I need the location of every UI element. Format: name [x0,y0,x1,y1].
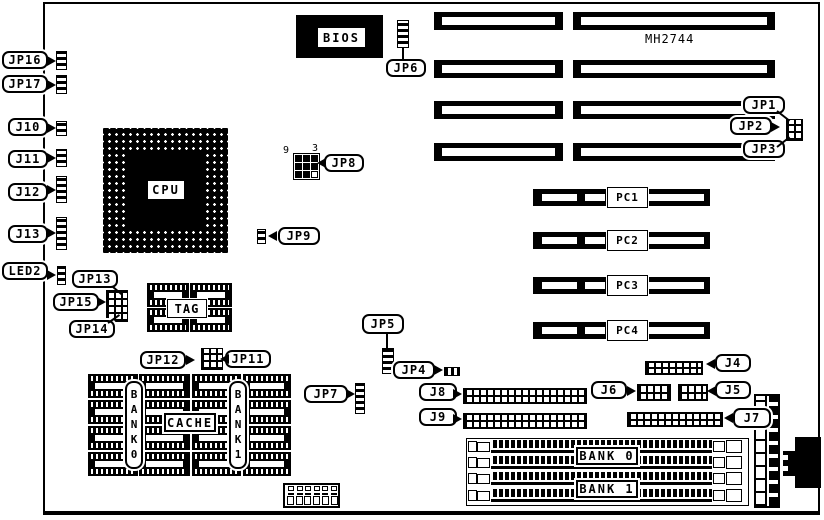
callout-jp15: JP15 [53,293,99,311]
callout-jp2: JP2 [730,117,772,135]
jp8-pin [303,163,310,170]
fp-pin [304,496,311,505]
isa-slot [434,101,563,119]
tag-label: TAG [167,299,207,318]
fp-pin [287,496,294,505]
pci-slot-key [542,237,577,244]
simm-endcap [726,440,742,453]
motherboard-diagram: MH2744 BIOS CPU JP16 JP17 J10 J11 J12 J1… [0,0,824,520]
pointer-j11 [47,153,56,163]
callout-j7: J7 [733,408,771,428]
pointer-jp17 [47,80,56,90]
pci-slot-key [542,327,577,334]
j13-connector [56,217,67,250]
simm-clip [468,457,477,468]
callout-jp12: JP12 [140,351,186,369]
pointer-led2 [47,270,56,280]
bios-chip-label: BIOS [318,28,365,47]
pointer-jp2 [771,122,780,132]
callout-j4: J4 [715,354,751,372]
chip-band [250,409,284,415]
fp-dash [297,493,303,495]
pci-slot-label: PC4 [607,320,648,341]
callout-j13: J13 [8,225,48,243]
fp-tab [305,486,311,491]
jp8-pin [303,155,310,162]
callout-j9: J9 [419,408,457,426]
pointer-jp9 [268,231,277,241]
fp-dash [314,493,320,495]
simm-clip [468,441,477,452]
pointer-jp16 [47,56,56,66]
fp-tab [297,486,303,491]
simm-clip [477,442,490,452]
pointer-j6 [627,386,636,396]
jp9-jumper [257,229,266,244]
j5-pin-header [678,384,708,401]
pci-slot-key [649,327,704,334]
fp-dash [322,493,328,495]
isa-slot [434,143,563,161]
cache-sram-chip [243,452,291,476]
pointer-j7 [724,413,733,423]
cache-bank0-label: BANK0 [125,381,143,469]
jp6-jumper [397,20,409,48]
simm-clip [468,490,477,501]
fp-dash [288,493,294,495]
pointer-jp5 [386,333,388,348]
simm-clip [713,441,725,452]
jp8-pin [303,171,310,178]
chip-band [146,435,183,441]
callout-jp16: JP16 [2,51,48,69]
jp8-pin9-text: 9 [283,145,289,156]
pci-slot-key [585,282,605,289]
simm-clip [477,458,490,468]
pci-slot-key [542,282,577,289]
isa-slot [573,60,775,78]
j8-pin-header [463,388,587,404]
pointer-jp7 [346,389,355,399]
jp8-jumper-grid [293,153,320,180]
led2-component [57,266,66,285]
fp-pin [322,496,329,505]
cache-bank1-label: BANK1 [229,381,247,469]
callout-jp8: JP8 [324,154,364,172]
isa-slot [434,60,563,78]
callout-jp7: JP7 [304,385,348,403]
callout-j6: J6 [591,381,627,399]
pointer-jp6 [402,47,404,60]
pci-slot-key [585,237,605,244]
simm-endcap [726,472,742,485]
j6-pin-header [637,384,671,401]
front-panel-connector [283,483,340,508]
callout-j12: J12 [8,183,48,201]
fp-pin [296,496,303,505]
j9-pin-header [463,413,587,429]
chip-band [197,292,225,298]
simm-clip [477,491,490,501]
jp16-jumper [56,51,67,70]
simm-bank0-label: BANK 0 [576,447,638,465]
j12-connector [56,176,67,203]
simm-clip [468,473,477,484]
pci-slot-label: PC1 [607,187,648,208]
fp-tab [322,486,328,491]
callout-jp9: JP9 [278,227,320,245]
keyboard-connector-notch [783,455,788,460]
jp8-pin [295,163,302,170]
fp-pin [313,496,320,505]
jp8-pin-open [311,171,318,178]
callout-jp6: JP6 [386,59,426,77]
simm-clip [713,490,725,501]
callout-j8: J8 [419,383,457,401]
pointer-j8 [453,389,462,399]
pointer-j5 [707,386,716,396]
fp-tab [288,486,294,491]
simm-endcap [726,489,742,502]
pointer-jp8 [317,158,326,168]
pointer-j12 [47,185,56,195]
chip-band [250,383,284,389]
chip-band [146,461,183,467]
fp-dash [305,493,311,495]
simm-endcap [726,456,742,469]
pointer-jp11 [220,354,229,364]
cache-sram-chip [139,374,190,398]
pci-slot-label: PC2 [607,230,648,251]
cache-sram-chip [243,426,291,450]
jp7-jumper [355,383,365,414]
pci-slot-label: PC3 [607,275,648,296]
cache-sram-chip [243,374,291,398]
callout-jp4: JP4 [393,361,435,379]
chip-band [146,383,183,389]
isa-slot [573,12,775,30]
simm-clip [713,457,725,468]
callout-j5: J5 [715,381,751,399]
jp4-jumper [444,367,460,376]
cache-sram-chip [243,400,291,424]
chip-band [250,461,284,467]
j7-pin-header [627,412,723,427]
callout-j11: J11 [8,150,48,168]
jp8-pin [295,155,302,162]
callout-jp17: JP17 [2,75,48,93]
fp-dash [331,493,337,495]
pointer-jp12 [186,355,195,365]
cache-label: CACHE [164,413,216,432]
pointer-jp4 [434,365,443,375]
callout-j10: J10 [8,118,48,136]
callout-jp11: JP11 [225,350,271,368]
cpu-label: CPU [148,181,184,199]
j4-pin-header [645,361,703,375]
chip-band [250,435,284,441]
fp-pin [331,496,338,505]
pci-slot-key [585,327,605,334]
board-model-text: MH2744 [645,32,694,46]
pointer-j9 [453,414,462,424]
isa-slot [434,12,563,30]
keyboard-connector-notch [783,466,788,471]
callout-led2: LED2 [2,262,48,280]
pci-slot-key [585,194,605,201]
j11-connector [56,149,67,167]
keyboard-connector [795,437,821,488]
cache-sram-chip [139,452,190,476]
pci-slot-key [542,194,577,201]
jp8-pin [295,171,302,178]
pci-slot-key [649,237,704,244]
fp-tab [314,486,320,491]
pci-slot-key [649,194,704,201]
j10-connector [56,121,67,136]
callout-jp5: JP5 [362,314,404,334]
simm-clip [477,474,490,484]
pointer-j4 [706,359,715,369]
pointer-j10 [47,123,56,133]
pci-slot-key [649,282,704,289]
pointer-jp15 [97,297,106,307]
fp-tab [331,486,337,491]
chip-band [154,292,182,298]
callout-jp13: JP13 [72,270,118,288]
pointer-j13 [47,228,56,238]
jp8-pin3-text: 3 [312,143,318,154]
jp17-jumper [56,75,67,94]
simm-clip [713,473,725,484]
simm-bank1-label: BANK 1 [576,480,638,498]
